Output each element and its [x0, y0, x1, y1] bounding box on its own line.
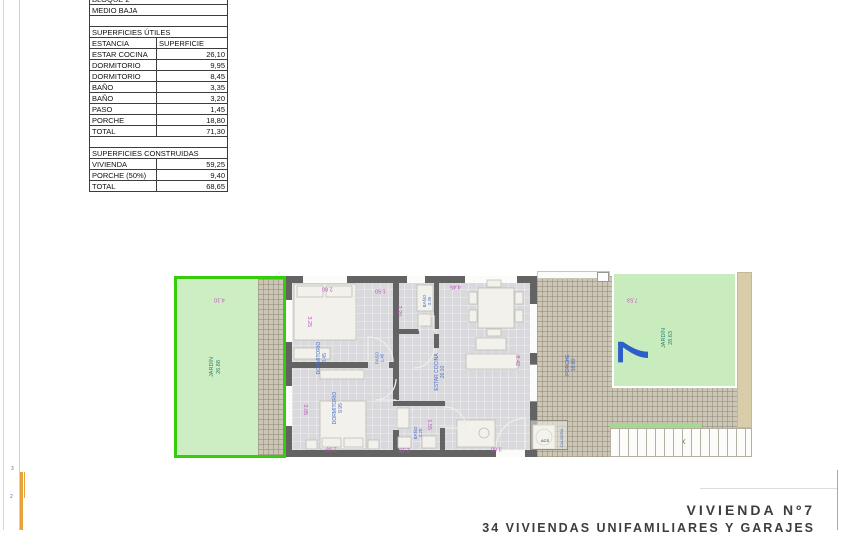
room-name-cell: BAÑO	[90, 93, 157, 104]
construidas-title-cell: SUPERFICIES CONSTRUIDAS	[90, 148, 228, 159]
table-row: ESTANCIASUPERFICIE	[90, 38, 228, 49]
dim-jardin-left-width: 4.10	[214, 296, 225, 302]
jardin-left-label: JARDÍN26.88	[194, 356, 238, 378]
bano1-label: BAÑO3.35	[414, 296, 440, 306]
blank-cell	[90, 16, 228, 27]
table-row: PORCHE (50%)9,40	[90, 170, 228, 181]
dim-bano2-width: 1.55	[426, 419, 432, 430]
sheet-frame-line-bottom	[700, 488, 837, 489]
room-name-cell: VIVIENDA	[90, 159, 157, 170]
dormitorio1-label: DORMITORIO8.45	[302, 351, 342, 365]
dim-dorm2-width: 2.93	[326, 445, 337, 451]
scale-bar-tick-label-1: 3	[11, 466, 14, 472]
total-name-cell: TOTAL	[90, 126, 157, 137]
sheet-frame-line-left-outer	[3, 0, 4, 530]
dim-estar-bottom: 3.00	[491, 445, 502, 451]
dim-dorm1-height: 3.25	[306, 316, 312, 327]
dining-chair	[515, 292, 523, 304]
dining-chair	[487, 329, 501, 336]
room-name-cell: BAÑO	[90, 82, 157, 93]
room-name-cell: DORMITORIO	[90, 71, 157, 82]
col-header-superficie: SUPERFICIE	[157, 38, 228, 49]
scale-bar-tick-label-2: 2	[10, 494, 13, 500]
table-row	[90, 137, 228, 148]
room-area-cell: 26,10	[157, 49, 228, 60]
porche-label: PORCHE18.80	[554, 358, 588, 372]
table-row: MEDIO BAJA	[90, 5, 228, 16]
dim-estar-height: 8.42	[514, 355, 520, 366]
dim-bano1-height: 2.20	[396, 305, 402, 316]
room-area-cell: 9,95	[157, 60, 228, 71]
sheet-frame-line-right	[837, 470, 838, 530]
table-row: SUPERFICIES CONSTRUIDAS	[90, 148, 228, 159]
dorm2-nightstand	[306, 440, 317, 449]
table-row: BAÑO3,20	[90, 93, 228, 104]
dorm2-wardrobe	[320, 370, 364, 379]
room-area-cell: 1,45	[157, 104, 228, 115]
dining-chair	[487, 280, 501, 287]
total-area-cell: 71,30	[157, 126, 228, 137]
table-row: ESTAR COCINA26,10	[90, 49, 228, 60]
table-row: SUPERFICIES ÚTILES	[90, 27, 228, 38]
dim-estar-width: 4.45	[450, 283, 461, 289]
bano2-shower	[397, 408, 409, 428]
dim-jardin-right-width: 7.53	[627, 296, 638, 302]
dining-chair	[469, 310, 477, 322]
kitchen-sink	[479, 428, 489, 438]
dim-dorm1-width: 2.80	[322, 285, 333, 291]
project-title: 34 VIVIENDAS UNIFAMILIARES Y GARAJES	[482, 521, 815, 535]
sheet-frame-line-left-inner	[19, 0, 20, 530]
caldera-label: CALDERA	[550, 433, 574, 443]
acs-label: ACS	[541, 438, 549, 443]
table-row: TOTAL71,30	[90, 126, 228, 137]
table-row: TOTAL68,65	[90, 181, 228, 192]
dorm2-nightstand	[368, 440, 379, 449]
dining-chair	[515, 310, 523, 322]
table-row: PORCHE18,80	[90, 115, 228, 126]
room-name-cell: PORCHE (50%)	[90, 170, 157, 181]
estar-cocina-label: ESTAR COCINA26.10	[422, 365, 458, 379]
door-swing-entry	[496, 418, 525, 448]
dim-bano1-width: 1.50	[375, 287, 386, 293]
dorm2-pillow	[344, 438, 363, 447]
table-row: VIVIENDA59,25	[90, 159, 228, 170]
dim-bano2-bottom: 2.18	[399, 446, 410, 452]
room-name-cell: ESTAR COCINA	[90, 49, 157, 60]
room-area-cell: 59,25	[157, 159, 228, 170]
unit-number: 7	[612, 334, 656, 370]
table-row: DORMITORIO9,95	[90, 60, 228, 71]
blank-cell	[90, 137, 228, 148]
floor-cell: MEDIO BAJA	[90, 5, 228, 16]
floor-plan: ‹	[170, 268, 752, 470]
dormitorio2-label: DORMITORIO9.95	[318, 401, 358, 415]
table-row	[90, 16, 228, 27]
areas-table: BLOQUE 2 MEDIO BAJA SUPERFICIES ÚTILES E…	[89, 0, 228, 192]
room-area-cell: 9,40	[157, 170, 228, 181]
table-row: DORMITORIO8,45	[90, 71, 228, 82]
col-header-estancia: ESTANCIA	[90, 38, 157, 49]
total-area-cell: 68,65	[157, 181, 228, 192]
dim-dorm2-height: 3.05	[302, 404, 308, 415]
table-row: PASO1,45	[90, 104, 228, 115]
utiles-title-cell: SUPERFICIES ÚTILES	[90, 27, 228, 38]
table-row: BAÑO3,35	[90, 82, 228, 93]
coffee-table	[476, 338, 506, 350]
scale-bar-tick-mark	[24, 472, 26, 498]
room-area-cell: 3,35	[157, 82, 228, 93]
paso-label: PASO1.45	[366, 352, 394, 365]
drawing-title: VIVIENDA Nº7	[482, 502, 815, 518]
room-area-cell: 3,20	[157, 93, 228, 104]
room-area-cell: 8,45	[157, 71, 228, 82]
room-area-cell: 18,80	[157, 115, 228, 126]
room-name-cell: PASO	[90, 104, 157, 115]
dining-chair	[469, 292, 477, 304]
door-swing-dorm2	[375, 379, 396, 400]
dorm1-pillow	[297, 286, 323, 297]
room-name-cell: DORMITORIO	[90, 60, 157, 71]
total-name-cell: TOTAL	[90, 181, 157, 192]
sofa	[466, 354, 518, 369]
room-name-cell: PORCHE	[90, 115, 157, 126]
dining-table	[478, 288, 514, 328]
title-block: VIVIENDA Nº7 34 VIVIENDAS UNIFAMILIARES …	[482, 502, 815, 535]
